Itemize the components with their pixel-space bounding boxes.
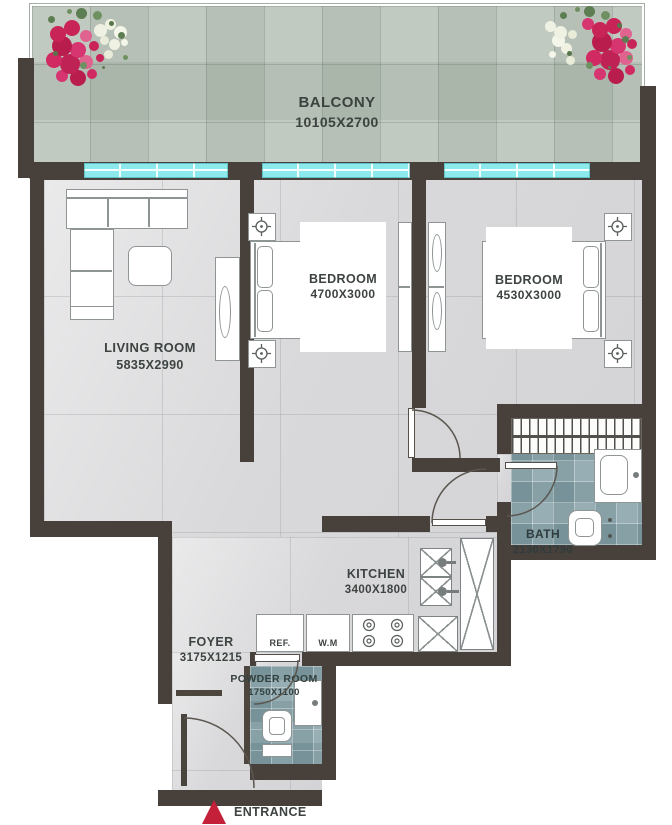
toilet-bowl (269, 717, 285, 735)
wardrobe (398, 222, 412, 352)
door-leaf (505, 462, 557, 469)
pillow (257, 290, 273, 332)
flower-blossoms-white (94, 24, 107, 37)
wall (158, 537, 172, 712)
tv-screen (219, 286, 231, 338)
bath-label: BATH 2130X1790 (501, 524, 585, 560)
closet-rod (512, 435, 641, 438)
pillow (257, 246, 273, 288)
flush-button (608, 518, 612, 522)
wall (486, 516, 500, 532)
nightstand (248, 340, 276, 368)
room-dims: 1750X1100 (248, 687, 300, 699)
wall (302, 652, 510, 666)
faucet (438, 558, 447, 567)
door-leaf (432, 519, 486, 526)
wall (412, 458, 500, 472)
table-lamp-icon (605, 214, 630, 239)
wall (322, 516, 430, 532)
nightstand (604, 213, 632, 241)
wardrobe-handle (432, 234, 442, 272)
services-shaft (460, 538, 494, 650)
stove-burners-icon (353, 615, 412, 650)
flower-leaves (584, 6, 595, 17)
room-dims: 2130X1790 (513, 543, 573, 557)
nightstand (248, 213, 276, 241)
powder-room-label: POWDER ROOM 1750X1100 (232, 672, 316, 700)
room-dims: 4700X3000 (310, 287, 375, 303)
door-leaf (408, 408, 415, 458)
bedroom-2-label-card: BEDROOM 4530X3000 (486, 227, 572, 349)
washing-machine: W.M (306, 614, 350, 652)
coffee-table (128, 246, 172, 286)
headboard (254, 243, 256, 337)
table-lamp-icon (605, 341, 630, 366)
bedroom-1-label-card: BEDROOM 4700X3000 (300, 222, 386, 352)
room-name: POWDER ROOM (230, 673, 317, 687)
wall (497, 418, 511, 454)
room-name: BEDROOM (309, 271, 377, 287)
flush-button (608, 534, 612, 538)
foyer-shelf (176, 690, 222, 696)
faucet (633, 472, 639, 478)
balcony-window (84, 163, 228, 178)
door-jamb (158, 704, 172, 712)
pillow (583, 290, 599, 332)
wall (30, 178, 44, 537)
room-dims: 5835X2990 (116, 357, 184, 373)
sofa-back (66, 189, 188, 198)
wall (412, 178, 426, 408)
room-name: LIVING ROOM (104, 340, 196, 357)
wardrobe-handle (432, 292, 442, 330)
flower-leaves (76, 8, 87, 19)
refrigerator-label: REF. (257, 638, 303, 650)
wall (497, 404, 656, 418)
faucet (312, 700, 318, 706)
room-name: FOYER (188, 634, 233, 650)
flower-blossoms-pink (50, 26, 66, 42)
room-name: BALCONY (299, 93, 376, 113)
floor-plan: BALCONY 10105X2700 (0, 0, 672, 825)
room-name: KITCHEN (347, 566, 405, 582)
toilet (262, 710, 292, 742)
sofa-cushion-divider (148, 199, 150, 227)
room-name: BEDROOM (495, 272, 563, 288)
bedroom-2-label: BEDROOM 4530X3000 (495, 272, 563, 304)
entrance-arrow-icon (202, 800, 226, 824)
room-dims: 10105X2700 (295, 113, 378, 131)
bedroom-1-label: BEDROOM 4700X3000 (309, 271, 377, 303)
living-room-label: LIVING ROOM 5835X2990 (88, 338, 212, 376)
door-jamb (158, 782, 172, 790)
flower-blossoms-pink (592, 22, 608, 38)
door-leaf (254, 654, 300, 662)
entrance-label: ENTRANCE (234, 803, 334, 821)
gas-stove (352, 614, 414, 652)
foyer-label: FOYER 3175X1215 (166, 632, 256, 668)
flower-blossoms-white (554, 26, 567, 39)
sofa-cushion-divider (107, 199, 109, 227)
faucet (438, 587, 447, 596)
sofa-chaise-end (70, 306, 114, 320)
wardrobe-divider (399, 286, 410, 288)
faucet-spout (447, 561, 456, 564)
sofa-seats (66, 198, 188, 229)
flower-plant-icon (36, 8, 140, 90)
pillow (583, 246, 599, 288)
washing-machine-label: W.M (307, 638, 349, 650)
entrance-text: ENTRANCE (234, 804, 307, 820)
wash-basin (600, 455, 628, 495)
refrigerator: REF. (256, 614, 304, 652)
wall (640, 86, 656, 178)
sofa-cushion-divider (71, 270, 112, 272)
balcony-window (262, 163, 410, 178)
wall (30, 521, 172, 537)
sofa-chaise (70, 229, 114, 308)
toilet-tank (262, 744, 292, 757)
balcony-window (444, 163, 590, 178)
room-dims: 3400X1800 (345, 583, 407, 598)
services-shaft (418, 616, 458, 652)
wall (18, 58, 34, 178)
wardrobe-divider (429, 286, 444, 288)
wash-basin-counter (594, 449, 642, 503)
flower-plant-icon (540, 6, 644, 88)
faucet-spout (447, 590, 459, 593)
nightstand (604, 340, 632, 368)
table-lamp-icon (249, 214, 274, 239)
wall (642, 178, 656, 560)
table-lamp-icon (249, 341, 274, 366)
balcony-label: BALCONY 10105X2700 (257, 90, 417, 134)
wall (322, 652, 336, 780)
room-dims: 3175X1215 (180, 651, 242, 666)
room-name: BATH (526, 527, 560, 543)
headboard (600, 243, 602, 337)
kitchen-label: KITCHEN 3400X1800 (330, 564, 422, 600)
door-leaf (181, 714, 187, 786)
room-dims: 4530X3000 (496, 288, 561, 304)
